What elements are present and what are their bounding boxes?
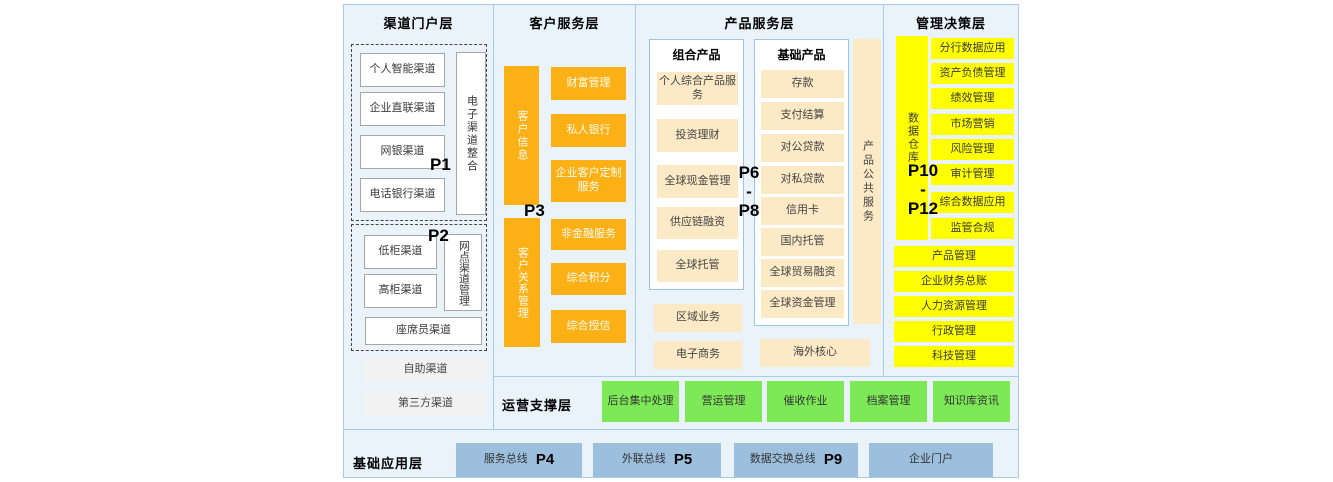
box-backoffice-centralized-processing: 后台集中处理 <box>602 381 679 422</box>
label-p8: P8 <box>734 201 764 220</box>
box-integrated-credit: 综合授信 <box>551 310 626 343</box>
external-bus-label: 外联总线 <box>622 453 666 467</box>
box-asset-liability-management: 资产负债管理 <box>931 63 1014 84</box>
label-p10-p12: P10 - P12 <box>898 161 948 218</box>
box-supply-chain-finance: 供应链融资 <box>657 207 738 239</box>
box-payment-settlement: 支付结算 <box>761 102 844 130</box>
box-regulatory-compliance: 监管合规 <box>931 218 1014 239</box>
panel-title-combo: 组合产品 <box>650 46 743 63</box>
box-investment-wealth: 投资理财 <box>657 119 738 152</box>
box-enterprise-portal: 企业门户 <box>869 443 993 477</box>
label-p6: P6 <box>734 163 764 182</box>
box-collection-operations: 催收作业 <box>767 381 844 422</box>
label-p5: P5 <box>674 451 692 470</box>
box-phone-banking-channel: 电话银行渠道 <box>360 178 445 212</box>
box-personal-integrated-product-service: 个人综合产品服务 <box>657 72 738 105</box>
box-deposits: 存款 <box>761 70 844 98</box>
box-product-management: 产品管理 <box>894 246 1014 267</box>
layer-customer-service: 客户服务层 客户信息 客户关系管理 财富管理 私人银行 企业客户定制服务 非金融… <box>494 5 636 376</box>
box-agent-channel: 座席员渠道 <box>365 317 482 345</box>
layer-operations-support: 运营支撑层 后台集中处理 营运管理 催收作业 档案管理 知识库资讯 <box>494 376 1018 429</box>
layer-title-management: 管理决策层 <box>884 13 1018 32</box>
box-integrated-points: 综合积分 <box>551 263 626 295</box>
layer-foundation-application: 基础应用层 服务总线 P4 外联总线 P5 数据交换总线 P9 企业门户 <box>344 429 1018 479</box>
box-archive-management: 档案管理 <box>850 381 927 422</box>
box-operation-management: 营运管理 <box>685 381 762 422</box>
layer-product-service: 产品服务层 组合产品 个人综合产品服务 投资理财 全球现金管理 供应链融资 全球… <box>636 5 884 376</box>
bar-customer-relationship-management: 客户关系管理 <box>504 218 540 347</box>
layer-title-customer: 客户服务层 <box>494 13 635 32</box>
layer-management-decision: 管理决策层 数据仓库 分行数据应用 资产负债管理 绩效管理 市场营销 风险管理 … <box>884 5 1018 376</box>
label-p9: P9 <box>824 451 842 470</box>
label-p10: P10 <box>898 161 948 180</box>
enterprise-portal-label: 企业门户 <box>909 453 953 467</box>
layer-title-foundation: 基础应用层 <box>353 453 423 472</box>
bar-product-common-services: 产品公共服务 <box>853 39 881 324</box>
box-corporate-loans: 对公贷款 <box>761 134 844 162</box>
box-branch-data-application: 分行数据应用 <box>931 38 1014 59</box>
box-credit-card: 信用卡 <box>761 197 844 225</box>
box-global-trade-finance: 全球贸易融资 <box>761 259 844 287</box>
box-corporate-custom-service: 企业客户定制服务 <box>551 160 626 202</box>
box-global-treasury-management: 全球资金管理 <box>761 290 844 318</box>
box-non-financial-service: 非金融服务 <box>551 219 626 250</box>
layer-title-product: 产品服务层 <box>636 13 883 32</box>
channel-group-2: 低柜渠道 高柜渠道 网点渠道管理 座席员渠道 <box>351 224 487 351</box>
label-p6-p8-sep: - <box>734 182 764 201</box>
label-p12: P12 <box>898 199 948 218</box>
box-high-counter-channel: 高柜渠道 <box>364 274 437 308</box>
panel-combo-products: 组合产品 个人综合产品服务 投资理财 全球现金管理 供应链融资 全球托管 <box>649 39 744 290</box>
box-regional-business: 区域业务 <box>654 304 742 332</box>
label-p2: P2 <box>428 227 449 244</box>
label-p10-p12-sep: - <box>898 180 948 199</box>
bar-customer-info: 客户信息 <box>504 66 539 205</box>
label-p1: P1 <box>430 156 451 173</box>
layer-title-channel: 渠道门户层 <box>344 13 493 32</box>
bar-branch-channel-management: 网点渠道管理 <box>444 234 482 311</box>
box-performance-management: 绩效管理 <box>931 88 1014 109</box>
bar-e-channel-integration: 电子渠道整合 <box>456 52 486 215</box>
box-global-cash-management: 全球现金管理 <box>657 165 738 198</box>
box-wealth-management: 财富管理 <box>551 67 626 100</box>
box-human-resources-management: 人力资源管理 <box>894 296 1014 317</box>
box-personal-loans: 对私贷款 <box>761 166 844 194</box>
box-global-custody: 全球托管 <box>657 250 738 282</box>
box-corporate-direct-channel: 企业直联渠道 <box>360 92 445 126</box>
box-technology-management: 科技管理 <box>894 346 1014 367</box>
box-self-service-channel: 自助渠道 <box>365 358 486 381</box>
box-e-commerce: 电子商务 <box>654 341 742 369</box>
box-low-counter-channel: 低柜渠道 <box>364 235 437 269</box>
panel-basic-products: 基础产品 存款 支付结算 对公贷款 对私贷款 信用卡 国内托管 全球贸易融资 全… <box>754 39 849 326</box>
box-risk-management: 风险管理 <box>931 139 1014 160</box>
data-exchange-bus-label: 数据交换总线 <box>750 453 816 467</box>
box-third-party-channel: 第三方渠道 <box>365 392 486 415</box>
box-corporate-finance-ledger: 企业财务总账 <box>894 271 1014 292</box>
box-overseas-core: 海外核心 <box>760 339 870 367</box>
layer-channel-portal: 渠道门户层 个人智能渠道 企业直联渠道 网银渠道 电话银行渠道 电子渠道整合 P… <box>344 5 494 429</box>
label-p3: P3 <box>524 202 545 219</box>
box-knowledge-base-info: 知识库资讯 <box>933 381 1010 422</box>
box-administration-management: 行政管理 <box>894 321 1014 342</box>
box-data-exchange-bus: 数据交换总线 P9 <box>734 443 858 477</box>
channel-group-1: 个人智能渠道 企业直联渠道 网银渠道 电话银行渠道 电子渠道整合 <box>351 44 487 221</box>
box-service-bus: 服务总线 P4 <box>456 443 582 477</box>
box-personal-smart-channel: 个人智能渠道 <box>360 53 445 87</box>
box-private-banking: 私人银行 <box>551 114 626 147</box>
layer-title-operations: 运营支撑层 <box>502 395 572 414</box>
box-external-bus: 外联总线 P5 <box>593 443 721 477</box>
service-bus-label: 服务总线 <box>484 453 528 467</box>
architecture-diagram: 渠道门户层 个人智能渠道 企业直联渠道 网银渠道 电话银行渠道 电子渠道整合 P… <box>343 4 1019 478</box>
label-p6-p8: P6 - P8 <box>734 163 764 220</box>
box-marketing: 市场营销 <box>931 114 1014 135</box>
panel-title-basic: 基础产品 <box>755 46 848 63</box>
box-domestic-custody: 国内托管 <box>761 228 844 256</box>
label-p4: P4 <box>536 451 554 470</box>
